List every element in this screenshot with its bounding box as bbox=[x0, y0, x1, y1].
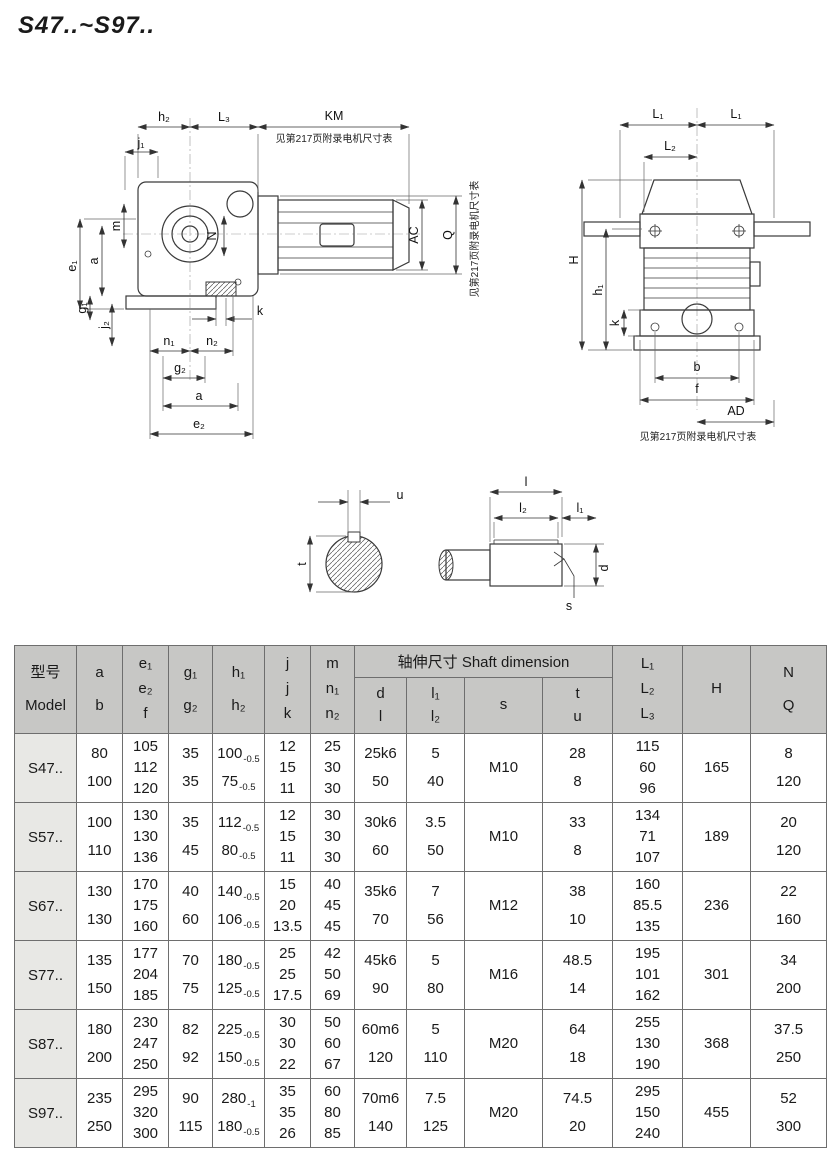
col-header-NQ: NQ bbox=[751, 646, 827, 734]
cell-NQ: 52300 bbox=[751, 1079, 827, 1148]
col-header-s: s bbox=[465, 678, 543, 734]
cell-ab: 180200 bbox=[77, 1010, 123, 1079]
cell-ab: 235250 bbox=[77, 1079, 123, 1148]
cell-mn: 425069 bbox=[311, 941, 355, 1010]
cell-H: 455 bbox=[683, 1079, 751, 1148]
cell-ab: 80100 bbox=[77, 734, 123, 803]
dim-label-AD: AD bbox=[727, 404, 744, 418]
table-row: S47..801001051121203535100-0.575-0.51215… bbox=[15, 734, 827, 803]
cell-l12: 3.550 bbox=[407, 803, 465, 872]
cell-tu: 338 bbox=[543, 803, 613, 872]
cell-H: 165 bbox=[683, 734, 751, 803]
cell-s: M10 bbox=[465, 734, 543, 803]
col-header-ef: e₁e₂f bbox=[123, 646, 169, 734]
cell-s: M12 bbox=[465, 872, 543, 941]
cell-l12: 756 bbox=[407, 872, 465, 941]
cell-jk: 121511 bbox=[265, 803, 311, 872]
dim-label-e1: e₁ bbox=[68, 260, 79, 271]
dim-label-h2: h₂ bbox=[158, 110, 170, 124]
cell-model: S97.. bbox=[15, 1079, 77, 1148]
table-body: S47..801001051121203535100-0.575-0.51215… bbox=[15, 734, 827, 1148]
dim-label-L2: L₂ bbox=[664, 139, 676, 153]
dim-label-L3: L₃ bbox=[218, 110, 230, 124]
col-header-l12: l₁l₂ bbox=[407, 678, 465, 734]
cell-NQ: 34200 bbox=[751, 941, 827, 1010]
col-header-h: h₁h₂ bbox=[213, 646, 265, 734]
cell-g: 4060 bbox=[169, 872, 213, 941]
col-header-jk: jjk bbox=[265, 646, 311, 734]
dim-label-g2: g₂ bbox=[174, 361, 186, 375]
cell-H: 189 bbox=[683, 803, 751, 872]
cell-jk: 121511 bbox=[265, 734, 311, 803]
side-dimensions: L₁ L₁ L₂ H h₁ k b f AD bbox=[567, 107, 774, 443]
gearbox-outline bbox=[126, 182, 258, 309]
dim-label-l: l bbox=[525, 475, 528, 489]
drawing-shaft-side: l l₂ l₁ d s bbox=[428, 472, 653, 620]
cell-NQ: 20120 bbox=[751, 803, 827, 872]
dim-label-f: f bbox=[695, 382, 699, 396]
cell-NQ: 8120 bbox=[751, 734, 827, 803]
cell-dl: 25k650 bbox=[355, 734, 407, 803]
cell-L: 16085.5135 bbox=[613, 872, 683, 941]
col-header-L: L₁L₂L₃ bbox=[613, 646, 683, 734]
cell-H: 301 bbox=[683, 941, 751, 1010]
cell-L: 295150240 bbox=[613, 1079, 683, 1148]
cell-ef: 130130136 bbox=[123, 803, 169, 872]
motor-outline bbox=[258, 196, 409, 274]
cell-H: 368 bbox=[683, 1010, 751, 1079]
cell-L: 13471107 bbox=[613, 803, 683, 872]
dim-label-L1-left: L₁ bbox=[652, 107, 663, 121]
cell-h: 100-0.575-0.5 bbox=[213, 734, 265, 803]
cell-h: 112-0.580-0.5 bbox=[213, 803, 265, 872]
cell-NQ: 37.5250 bbox=[751, 1010, 827, 1079]
dim-label-j1: j₁ bbox=[137, 136, 145, 150]
dim-label-g1: g₁ bbox=[75, 302, 89, 313]
cell-model: S67.. bbox=[15, 872, 77, 941]
cell-tu: 48.514 bbox=[543, 941, 613, 1010]
col-header-mn: mn₁n₂ bbox=[311, 646, 355, 734]
dim-label-k-side: k bbox=[608, 319, 622, 326]
cell-tu: 288 bbox=[543, 734, 613, 803]
cell-h: 280-1180-0.5 bbox=[213, 1079, 265, 1148]
dim-label-a-left: a bbox=[87, 257, 101, 264]
dim-label-a-bottom: a bbox=[196, 389, 203, 403]
dim-label-m: m bbox=[109, 221, 123, 231]
cell-dl: 60m6120 bbox=[355, 1010, 407, 1079]
motor-table-note-side: 见第217页附录电机尺寸表 bbox=[468, 181, 481, 298]
cell-h: 140-0.5106-0.5 bbox=[213, 872, 265, 941]
cell-dl: 45k690 bbox=[355, 941, 407, 1010]
dim-label-n2: n₂ bbox=[206, 334, 218, 348]
cell-ef: 177204185 bbox=[123, 941, 169, 1010]
table-row: S97..23525029532030090115280-1180-0.5353… bbox=[15, 1079, 827, 1148]
cell-s: M16 bbox=[465, 941, 543, 1010]
cell-ef: 295320300 bbox=[123, 1079, 169, 1148]
cell-h: 180-0.5125-0.5 bbox=[213, 941, 265, 1010]
dim-label-e2: e₂ bbox=[193, 417, 205, 431]
table-row: S67..1301301701751604060140-0.5106-0.515… bbox=[15, 872, 827, 941]
dim-label-L1-right: L₁ bbox=[730, 107, 741, 121]
cell-ef: 105112120 bbox=[123, 734, 169, 803]
shaft-section-circle bbox=[326, 536, 382, 592]
cell-H: 236 bbox=[683, 872, 751, 941]
cell-L: 255130190 bbox=[613, 1010, 683, 1079]
cell-tu: 74.520 bbox=[543, 1079, 613, 1148]
page-title: S47..~S97.. bbox=[18, 12, 155, 40]
cell-l12: 5110 bbox=[407, 1010, 465, 1079]
cell-l12: 7.5125 bbox=[407, 1079, 465, 1148]
cell-model: S57.. bbox=[15, 803, 77, 872]
dim-label-n1: n₁ bbox=[163, 334, 174, 348]
drawing-front-view: h₂ L₃ KM 见第217页附录电机尺寸表 j₁ e₁ a m g₁ j₂ N bbox=[68, 104, 498, 456]
dim-label-AC: AC bbox=[407, 226, 421, 243]
col-header-H: H bbox=[683, 646, 751, 734]
col-header-dl: dl bbox=[355, 678, 407, 734]
cell-dl: 70m6140 bbox=[355, 1079, 407, 1148]
col-header-model: 型号Model bbox=[15, 646, 77, 734]
cell-mn: 608085 bbox=[311, 1079, 355, 1148]
cell-g: 90115 bbox=[169, 1079, 213, 1148]
cell-g: 7075 bbox=[169, 941, 213, 1010]
dim-label-l1: l₁ bbox=[577, 501, 584, 515]
motor-table-note-bottom: 见第217页附录电机尺寸表 bbox=[640, 430, 757, 443]
motor-table-note-top: 见第217页附录电机尺寸表 bbox=[276, 132, 393, 145]
cell-s: M20 bbox=[465, 1010, 543, 1079]
cell-ab: 130130 bbox=[77, 872, 123, 941]
datasheet-page: S47..~S97.. bbox=[0, 0, 840, 1154]
col-header-tu: tu bbox=[543, 678, 613, 734]
cell-h: 225-0.5150-0.5 bbox=[213, 1010, 265, 1079]
keyway-slot bbox=[348, 532, 360, 542]
cell-ab: 100110 bbox=[77, 803, 123, 872]
drawing-side-view: L₁ L₁ L₂ H h₁ k b f AD bbox=[562, 100, 834, 444]
dim-label-Q: Q bbox=[441, 230, 455, 240]
cell-model: S47.. bbox=[15, 734, 77, 803]
cell-tu: 3810 bbox=[543, 872, 613, 941]
cell-mn: 303030 bbox=[311, 803, 355, 872]
dim-label-t: t bbox=[295, 562, 309, 566]
dim-label-KM: KM bbox=[325, 109, 344, 123]
cell-g: 8292 bbox=[169, 1010, 213, 1079]
dim-label-j2: j₂ bbox=[97, 321, 111, 330]
cell-model: S87.. bbox=[15, 1010, 77, 1079]
dim-label-b: b bbox=[694, 360, 701, 374]
dim-label-k-front: k bbox=[257, 304, 264, 318]
cell-L: 195101162 bbox=[613, 941, 683, 1010]
cell-g: 3545 bbox=[169, 803, 213, 872]
cell-s: M20 bbox=[465, 1079, 543, 1148]
cell-jk: 353526 bbox=[265, 1079, 311, 1148]
col-header-ab: ab bbox=[77, 646, 123, 734]
dim-label-s: s bbox=[566, 599, 572, 613]
cell-ef: 230247250 bbox=[123, 1010, 169, 1079]
cell-L: 1156096 bbox=[613, 734, 683, 803]
cell-ef: 170175160 bbox=[123, 872, 169, 941]
cell-s: M10 bbox=[465, 803, 543, 872]
cell-jk: 303022 bbox=[265, 1010, 311, 1079]
cell-jk: 252517.5 bbox=[265, 941, 311, 1010]
dimension-table: 型号Model ab e₁e₂f g₁g₂ h₁h₂ jjk mn₁n₂ 轴伸尺… bbox=[14, 645, 827, 1148]
dim-label-H: H bbox=[567, 255, 581, 264]
cell-mn: 404545 bbox=[311, 872, 355, 941]
cell-dl: 30k660 bbox=[355, 803, 407, 872]
dim-label-d: d bbox=[597, 564, 611, 571]
cell-l12: 540 bbox=[407, 734, 465, 803]
col-header-g: g₁g₂ bbox=[169, 646, 213, 734]
dim-label-N: N bbox=[205, 231, 219, 240]
dim-label-h1: h₁ bbox=[591, 284, 605, 295]
cell-jk: 152013.5 bbox=[265, 872, 311, 941]
cell-l12: 580 bbox=[407, 941, 465, 1010]
cell-ab: 135150 bbox=[77, 941, 123, 1010]
cell-dl: 35k670 bbox=[355, 872, 407, 941]
cell-tu: 6418 bbox=[543, 1010, 613, 1079]
shaft-outline bbox=[439, 540, 564, 586]
table-row: S77..1351501772041857075180-0.5125-0.525… bbox=[15, 941, 827, 1010]
cell-mn: 253030 bbox=[311, 734, 355, 803]
cell-NQ: 22160 bbox=[751, 872, 827, 941]
dim-label-u: u bbox=[397, 488, 404, 502]
cell-model: S77.. bbox=[15, 941, 77, 1010]
col-header-shaft-group: 轴伸尺寸 Shaft dimension bbox=[355, 646, 613, 678]
table-row: S87..1802002302472508292225-0.5150-0.530… bbox=[15, 1010, 827, 1079]
cell-g: 3535 bbox=[169, 734, 213, 803]
cell-mn: 506067 bbox=[311, 1010, 355, 1079]
table-row: S57..1001101301301363545112-0.580-0.5121… bbox=[15, 803, 827, 872]
dim-label-l2: l₂ bbox=[519, 501, 527, 515]
